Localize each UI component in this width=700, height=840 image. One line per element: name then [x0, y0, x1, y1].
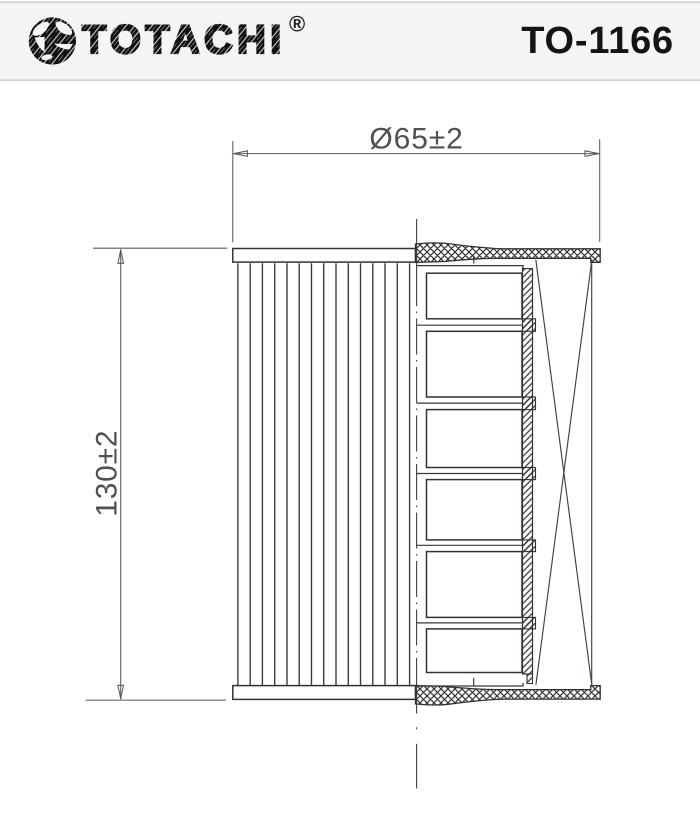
svg-text:130±2: 130±2: [91, 430, 124, 517]
svg-text:Ø65±2: Ø65±2: [369, 123, 463, 156]
svg-text:®: ®: [289, 12, 305, 37]
svg-text:TO-1166: TO-1166: [521, 20, 674, 62]
svg-text:TOTACHI: TOTACHI: [82, 18, 285, 62]
